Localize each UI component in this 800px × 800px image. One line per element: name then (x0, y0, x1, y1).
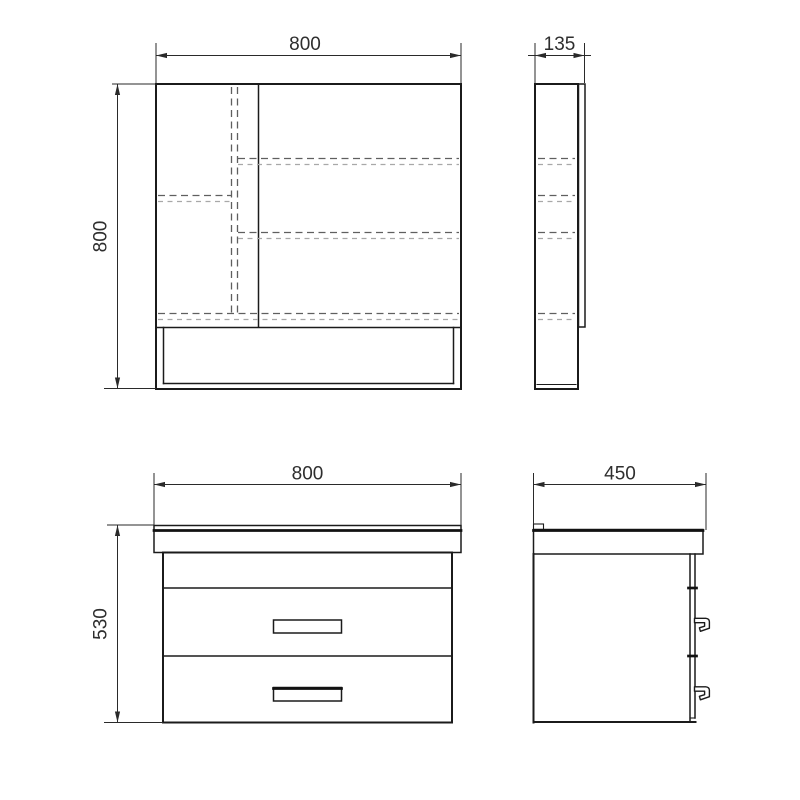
dimension-arrow (115, 712, 120, 723)
vanity-front-width-label: 800 (292, 464, 324, 485)
dimension-arrow (154, 482, 165, 487)
dimension-arrow (695, 482, 706, 487)
vanity-depth-dimension: 450 (534, 464, 707, 531)
dimension-arrow (534, 482, 545, 487)
mirror-width-dimension: 800 (156, 34, 461, 83)
drawing-svg: 800 800 135 (0, 0, 800, 800)
mirror-depth-dimension: 135 (528, 34, 591, 83)
dimension-arrow (156, 53, 167, 58)
drawer-handle-profile (695, 618, 710, 631)
vanity-front-height-label: 530 (91, 608, 112, 640)
dimension-arrow (450, 482, 461, 487)
vanity-body-outline (163, 553, 452, 723)
dimension-arrow (115, 84, 120, 95)
vanity-width-dimension: 800 (154, 464, 461, 526)
countertop-back-lip (534, 524, 544, 530)
mirror-front-height-label: 800 (91, 221, 112, 253)
mirror-front-outline (156, 84, 461, 389)
dimension-arrow (115, 378, 120, 389)
technical-drawing-sheet: 800 800 135 (0, 0, 800, 800)
vanity-front-view: 800 530 (91, 464, 462, 723)
mirror-front-width-label: 800 (289, 34, 321, 55)
mirror-height-dimension: 800 (91, 84, 157, 389)
vanity-height-dimension: 530 (91, 525, 164, 723)
drawer-handle-profile (695, 687, 710, 700)
mirror-door-panel (579, 84, 586, 327)
mirror-side-depth-label: 135 (544, 34, 576, 55)
drawer-handle (274, 620, 342, 633)
countertop-side-outline (534, 530, 704, 555)
dimension-arrow (450, 53, 461, 58)
mirror-side-body-outline (535, 84, 578, 389)
vanity-side-depth-label: 450 (604, 464, 636, 485)
dimension-arrow (115, 525, 120, 536)
mirror-front-view: 800 800 (91, 34, 462, 389)
vanity-side-view: 450 (534, 464, 710, 723)
mirror-side-view: 135 (528, 34, 591, 389)
